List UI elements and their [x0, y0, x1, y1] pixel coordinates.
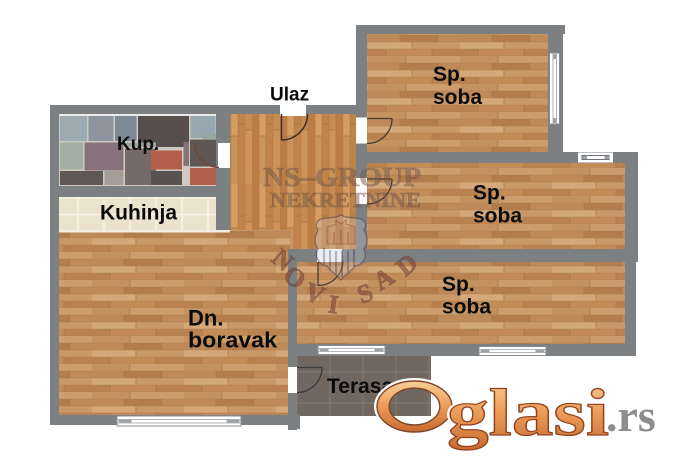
svg-text:boravak: boravak [188, 328, 278, 353]
svg-text:glasi: glasi [447, 376, 609, 450]
svg-text:Kuhinja: Kuhinja [100, 202, 177, 225]
svg-text:Sp.: Sp. [433, 63, 466, 86]
svg-text:Kup.: Kup. [117, 134, 159, 155]
svg-text:Sp.: Sp. [442, 273, 475, 296]
svg-text:soba: soba [433, 86, 482, 109]
svg-text:NEKRETNINE: NEKRETNINE [270, 188, 421, 212]
svg-text:.rs: .rs [606, 390, 656, 441]
svg-text:Sp.: Sp. [473, 182, 506, 205]
svg-text:soba: soba [473, 205, 522, 228]
svg-text:soba: soba [442, 296, 491, 319]
svg-text:Ulaz: Ulaz [270, 85, 309, 106]
